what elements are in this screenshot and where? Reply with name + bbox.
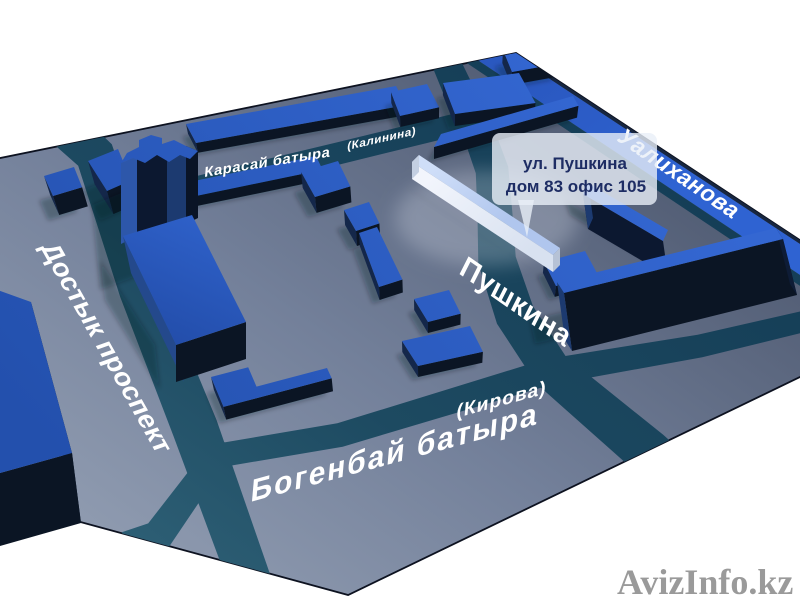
svg-text:AvizInfo.kz: AvizInfo.kz — [617, 562, 793, 600]
svg-text:дом 83 офис 105: дом 83 офис 105 — [506, 177, 646, 196]
svg-text:ул. Пушкина: ул. Пушкина — [523, 154, 628, 173]
